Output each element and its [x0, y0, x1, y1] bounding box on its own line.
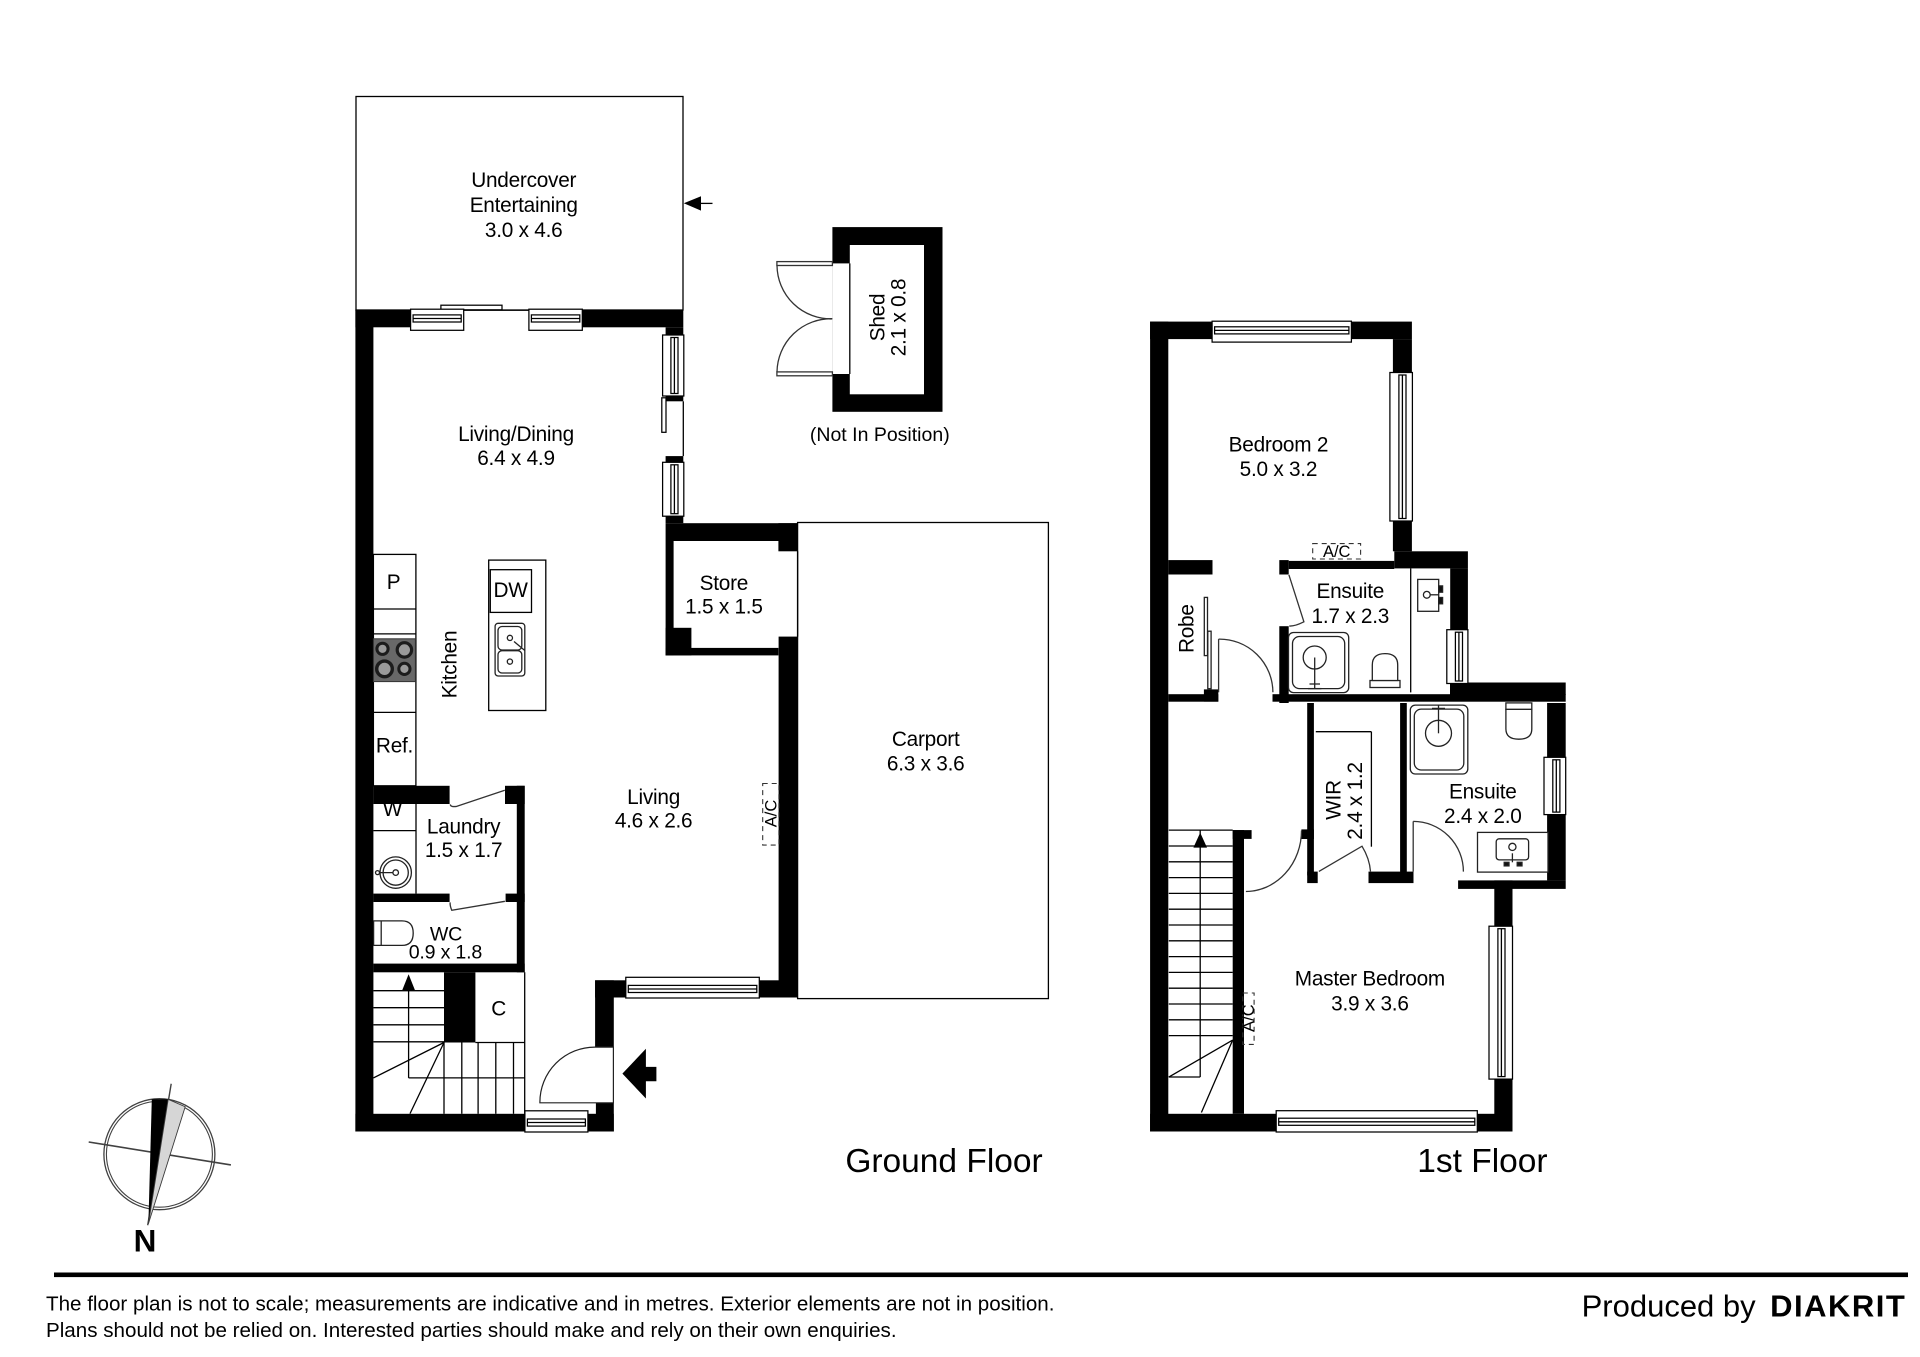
- svg-text:DIAKRIT: DIAKRIT: [1770, 1289, 1906, 1324]
- svg-text:1.5 x 1.5: 1.5 x 1.5: [685, 596, 763, 619]
- svg-text:3.9 x 3.6: 3.9 x 3.6: [1331, 992, 1409, 1015]
- svg-text:Living: Living: [627, 786, 680, 809]
- svg-text:1st Floor: 1st Floor: [1417, 1143, 1547, 1180]
- svg-text:Produced by: Produced by: [1582, 1289, 1757, 1324]
- svg-text:6.3 x 3.6: 6.3 x 3.6: [887, 753, 965, 776]
- svg-text:WIR: WIR: [1323, 780, 1346, 820]
- svg-text:6.4 x 4.9: 6.4 x 4.9: [477, 447, 555, 470]
- svg-text:1.7 x 2.3: 1.7 x 2.3: [1312, 605, 1390, 628]
- svg-text:Shed: Shed: [867, 294, 890, 342]
- svg-text:Store: Store: [700, 572, 748, 595]
- svg-text:2.1 x 0.8: 2.1 x 0.8: [888, 279, 911, 357]
- svg-text:3.0 x 4.6: 3.0 x 4.6: [485, 219, 563, 242]
- svg-text:A/C: A/C: [763, 800, 781, 828]
- svg-text:Carport: Carport: [892, 728, 960, 751]
- svg-text:Living/Dining: Living/Dining: [458, 423, 574, 446]
- svg-text:Ensuite: Ensuite: [1449, 780, 1517, 803]
- svg-text:W: W: [383, 798, 403, 821]
- svg-text:Robe: Robe: [1176, 604, 1199, 653]
- svg-text:Ensuite: Ensuite: [1316, 580, 1384, 603]
- svg-text:DW: DW: [494, 579, 529, 602]
- svg-text:(Not In Position): (Not In Position): [810, 424, 950, 446]
- svg-text:Ground Floor: Ground Floor: [845, 1143, 1042, 1180]
- svg-text:P: P: [387, 571, 401, 594]
- svg-text:Bedroom 2: Bedroom 2: [1229, 433, 1328, 456]
- svg-text:2.4 x 2.0: 2.4 x 2.0: [1444, 805, 1522, 828]
- svg-text:Plans should not be relied on.: Plans should not be relied on. Intereste…: [46, 1319, 897, 1342]
- svg-text:The floor plan is not to scale: The floor plan is not to scale; measurem…: [46, 1292, 1054, 1315]
- svg-text:Kitchen: Kitchen: [439, 631, 462, 699]
- svg-text:1.5 x 1.7: 1.5 x 1.7: [425, 839, 503, 862]
- svg-text:Master Bedroom: Master Bedroom: [1295, 968, 1445, 991]
- svg-text:2.4 x 1.2: 2.4 x 1.2: [1344, 762, 1367, 840]
- svg-text:Entertaining: Entertaining: [470, 194, 578, 217]
- svg-text:A/C: A/C: [1240, 1004, 1258, 1032]
- svg-text:C: C: [491, 997, 506, 1020]
- svg-text:Ref.: Ref.: [376, 735, 413, 758]
- svg-text:4.6 x 2.6: 4.6 x 2.6: [615, 810, 693, 833]
- svg-text:N: N: [134, 1223, 157, 1259]
- svg-text:A/C: A/C: [1323, 543, 1351, 561]
- svg-text:5.0 x 3.2: 5.0 x 3.2: [1240, 458, 1318, 481]
- svg-text:Undercover: Undercover: [471, 169, 576, 192]
- svg-text:0.9 x 1.8: 0.9 x 1.8: [409, 942, 483, 964]
- svg-text:Laundry: Laundry: [427, 815, 501, 838]
